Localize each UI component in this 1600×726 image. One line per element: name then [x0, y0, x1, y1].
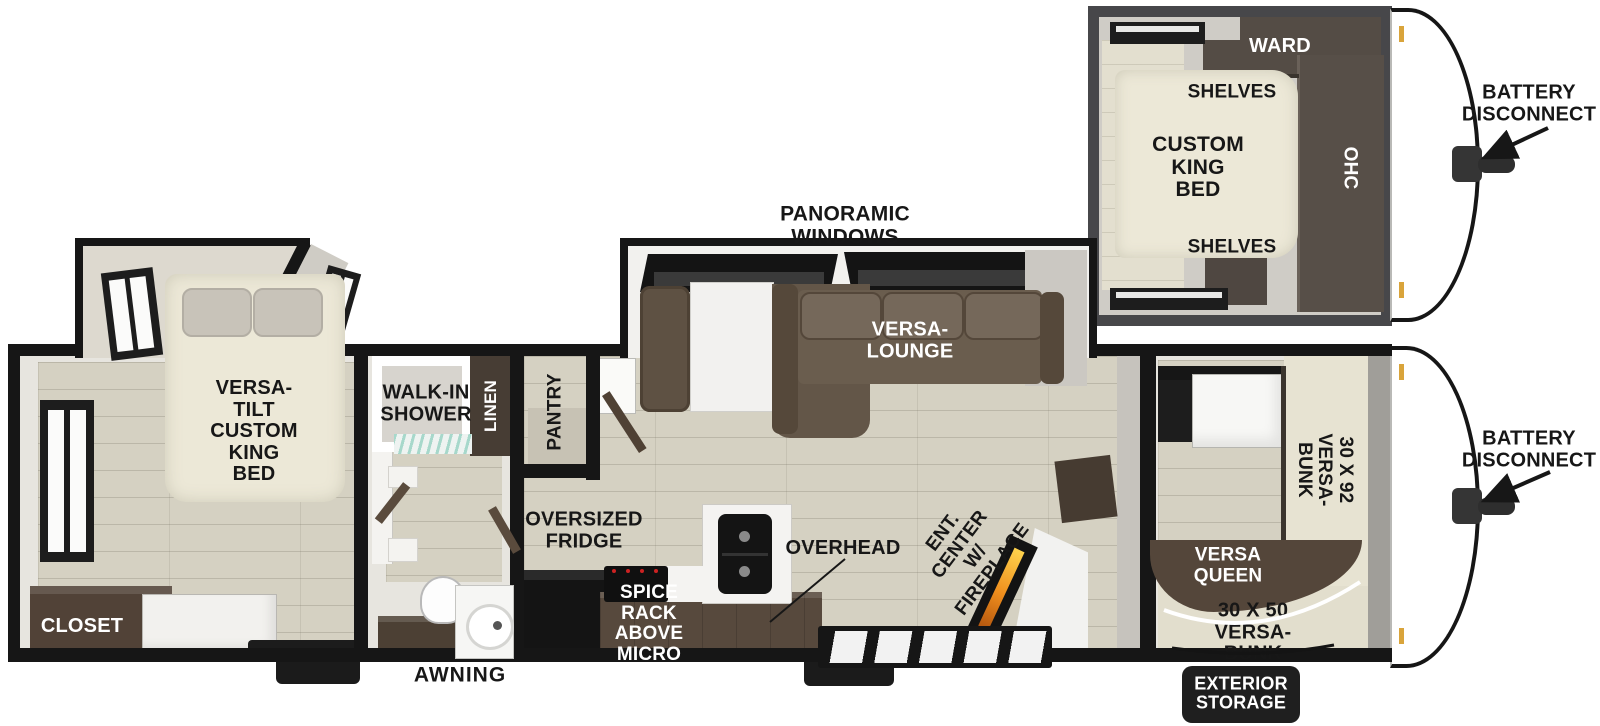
sofa-table — [690, 282, 774, 412]
sofa-left-arm — [640, 286, 690, 412]
window — [1110, 288, 1228, 310]
label-versa-tilt-king: VERSA-TILT CUSTOM KING BED — [210, 378, 298, 486]
faucet — [493, 621, 502, 630]
entry-steps — [818, 626, 1052, 668]
label-shelves-bottom: SHELVES — [1188, 238, 1277, 259]
label-exterior-storage: EXTERIOR STORAGE — [1194, 675, 1288, 714]
window — [844, 252, 1042, 292]
pillow — [253, 288, 323, 337]
label-custom-king-bed: CUSTOM KING BED — [1152, 134, 1244, 202]
sofa-chaise-arm — [772, 284, 798, 434]
sofa-back-cushion — [964, 292, 1044, 340]
under-body-step — [276, 660, 360, 684]
tv-panel — [1054, 455, 1117, 523]
kitchen-sink — [718, 514, 772, 594]
wall-living-bunkroom — [1140, 350, 1156, 652]
label-shelves-top: SHELVES — [1188, 83, 1277, 104]
ohc-cabinet — [1158, 380, 1192, 442]
wardrobe — [1192, 374, 1284, 448]
wall-pantry-bottom — [510, 464, 600, 478]
label-spice-rack: SPICE RACK ABOVE MICRO — [615, 583, 684, 665]
label-awning: AWNING — [414, 665, 506, 688]
label-closet: CLOSET — [41, 616, 123, 638]
shower-glass — [394, 434, 472, 454]
label-versa-lounge: VERSA-LOUNGE — [867, 319, 954, 362]
battery-disconnect-arrow — [1488, 472, 1550, 499]
label-bunk-30x92: 30 X 92 VERSA-BUNK — [1293, 434, 1355, 507]
label-overhead: OVERHEAD — [786, 538, 901, 560]
label-oversized-fridge: OVERSIZED FRIDGE — [525, 509, 642, 552]
clearance-light — [1399, 26, 1404, 42]
label-pantry: PANTRY — [546, 373, 567, 450]
clearance-light — [1399, 628, 1404, 644]
label-battery-disconnect-inset: BATTERY DISCONNECT — [1462, 82, 1596, 125]
label-ward: WARD — [1249, 36, 1311, 58]
label-ohc: OHC — [1339, 147, 1360, 190]
sofa-right-arm — [1040, 292, 1064, 384]
ent-wall-face — [1117, 356, 1140, 650]
label-bunk-30x50: 30 X 50 VERSA-BUNK — [1215, 601, 1292, 666]
wall-pantry-right — [586, 350, 600, 480]
bath-partition — [388, 538, 418, 562]
label-panoramic-windows: PANORAMIC WINDOWS — [780, 203, 910, 248]
pillow — [182, 288, 252, 337]
battery-disconnect-arrow — [1488, 128, 1548, 156]
window — [101, 267, 163, 361]
label-linen: LINEN — [482, 380, 500, 432]
bunk-wall-face — [1368, 356, 1390, 650]
window — [40, 400, 94, 562]
fridge — [524, 570, 610, 657]
hitch-pin — [1478, 498, 1515, 515]
floorplan-canvas: WARD SHELVES CUSTOM KING BED OHC SHELVES… — [0, 0, 1600, 726]
label-battery-disconnect-main: BATTERY DISCONNECT — [1462, 428, 1596, 471]
clearance-light — [1399, 364, 1404, 380]
sink-bowl — [466, 604, 514, 650]
label-versa-queen: VERSA QUEEN — [1194, 545, 1263, 586]
wall-left — [8, 344, 20, 662]
label-walk-in-shower: WALK-IN SHOWER — [380, 382, 471, 425]
window — [1110, 22, 1205, 44]
clearance-light — [1399, 282, 1404, 298]
wall-bottom — [8, 648, 1392, 662]
wall-bed-bath — [354, 350, 368, 652]
hitch-pin — [1478, 156, 1515, 173]
